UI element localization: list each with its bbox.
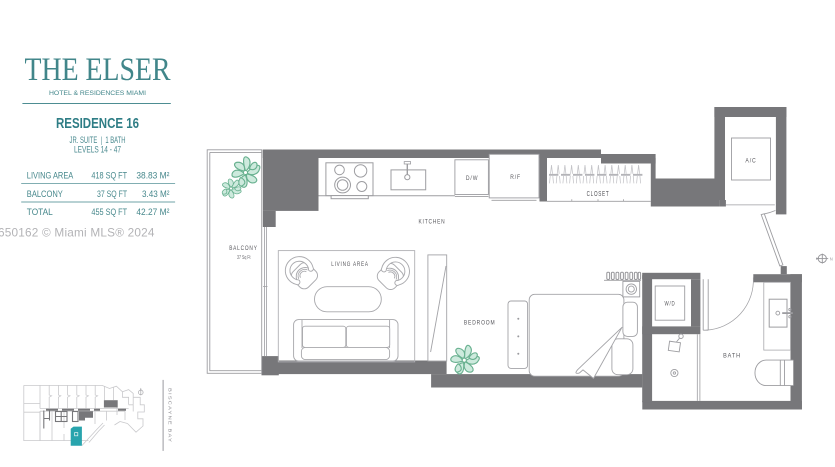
svg-text:CLOSET: CLOSET	[587, 191, 610, 198]
svg-text:BALCONY: BALCONY	[27, 188, 64, 199]
svg-text:RESIDENCE 16: RESIDENCE 16	[56, 115, 139, 132]
svg-text:37 Sq Ft: 37 Sq Ft	[237, 255, 251, 261]
svg-text:418 SQ FT: 418 SQ FT	[91, 170, 127, 181]
svg-text:D/W: D/W	[466, 175, 479, 182]
svg-text:42.27 M²: 42.27 M²	[136, 206, 169, 217]
svg-text:BISCAYNE BAY: BISCAYNE BAY	[167, 388, 172, 443]
svg-text:BATH: BATH	[723, 352, 741, 359]
svg-text:BALCONY: BALCONY	[229, 245, 258, 252]
svg-text:A/C: A/C	[745, 157, 756, 164]
svg-text:N: N	[830, 256, 833, 261]
svg-text:37 SQ FT: 37 SQ FT	[97, 188, 127, 199]
svg-text:38.83 M²: 38.83 M²	[136, 170, 169, 181]
svg-text:LIVING AREA: LIVING AREA	[27, 170, 74, 181]
svg-text:KITCHEN: KITCHEN	[419, 219, 446, 226]
svg-text:W/D: W/D	[665, 301, 676, 308]
svg-text:BEDROOM: BEDROOM	[464, 320, 496, 327]
svg-text:LEVELS 14 - 47: LEVELS 14 - 47	[74, 145, 121, 156]
svg-text:HOTEL & RESIDENCES MIAMI: HOTEL & RESIDENCES MIAMI	[49, 90, 146, 97]
svg-text:TOTAL: TOTAL	[27, 206, 53, 217]
svg-text:455 SQ FT: 455 SQ FT	[91, 206, 127, 217]
svg-text:3.43 M²: 3.43 M²	[142, 188, 170, 199]
svg-text:LIVING AREA: LIVING AREA	[331, 261, 369, 268]
svg-text:THE ELSER: THE ELSER	[25, 52, 171, 88]
svg-text:R/F: R/F	[510, 174, 521, 181]
svg-text:650162 © Miami MLS® 2024: 650162 © Miami MLS® 2024	[0, 226, 155, 240]
